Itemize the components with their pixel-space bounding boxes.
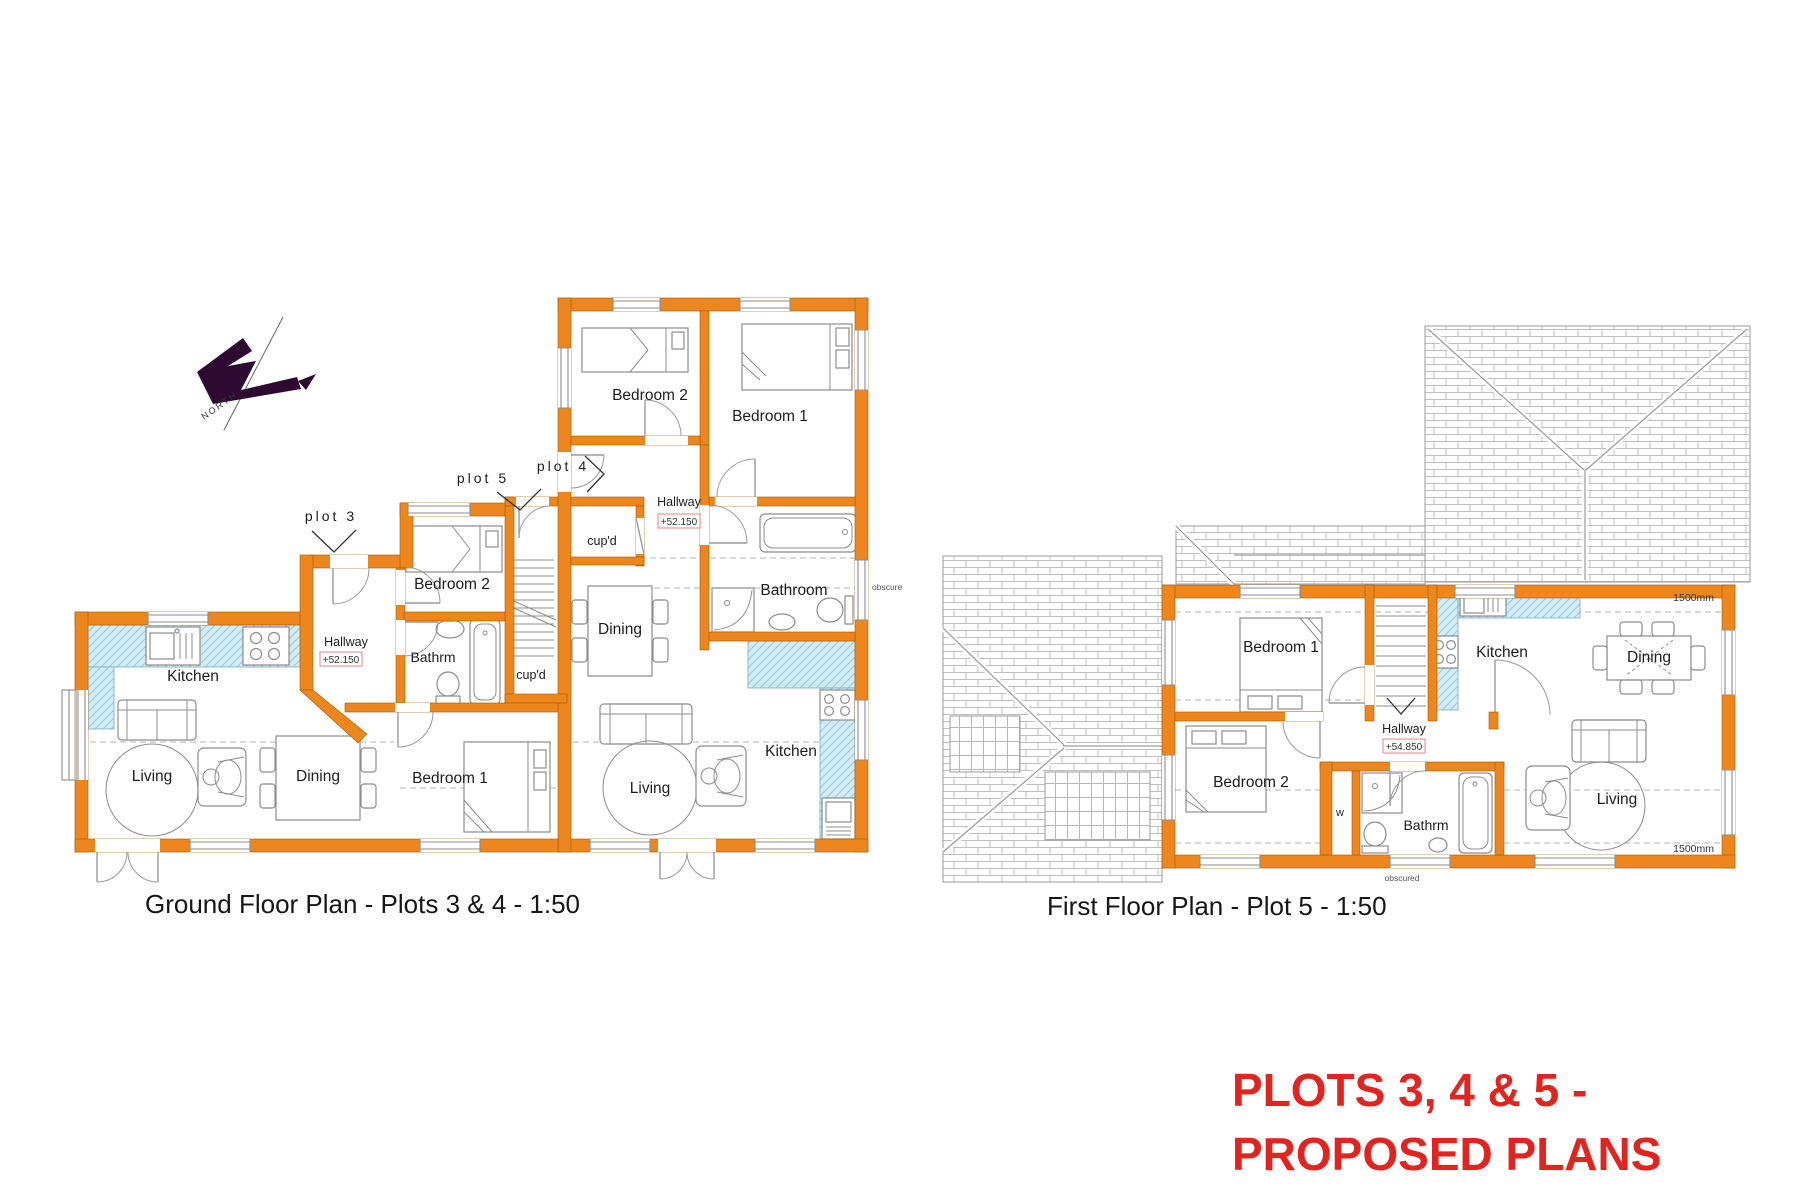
window <box>855 700 868 760</box>
door <box>700 505 747 545</box>
window <box>558 348 571 408</box>
bed-ff-bedroom2 <box>1186 726 1266 812</box>
north-arrow: NORTH <box>197 317 316 430</box>
window <box>1162 755 1175 820</box>
sheet-title-line1: PLOTS 3, 4 & 5 - <box>1232 1058 1661 1122</box>
room-label-bedroom1-plot3: Bedroom 1 <box>412 770 488 787</box>
room-label-cupboard-plot4: cup'd <box>587 534 617 548</box>
armchair-ff <box>1526 766 1570 830</box>
room-label-bathrm-ff: Bathrm <box>1403 817 1448 833</box>
room-label-living-plot4: Living <box>630 780 671 797</box>
room-label-bedroom1-plot4: Bedroom 1 <box>732 408 808 425</box>
window <box>190 839 250 852</box>
plot4-tag: plot 4 <box>537 458 589 474</box>
rug-plot3 <box>106 744 198 836</box>
window <box>1722 630 1735 695</box>
room-label-bedroom2-ff: Bedroom 2 <box>1213 774 1289 791</box>
room-label-dining-plot4: Dining <box>598 621 642 638</box>
window <box>1200 855 1260 868</box>
stairs-ff <box>1376 596 1426 714</box>
cupboard-door <box>636 518 644 554</box>
door <box>645 400 688 445</box>
window <box>420 839 480 852</box>
level-value-plot4: +52.150 <box>661 517 698 528</box>
window-note-obscured: obscured <box>1385 873 1420 883</box>
window-obscure <box>855 560 868 620</box>
room-label-bedroom1-ff: Bedroom 1 <box>1243 639 1319 656</box>
room-label-kitchen-ff: Kitchen <box>1476 644 1528 661</box>
first-floor-title: First Floor Plan - Plot 5 - 1:50 <box>1047 891 1387 922</box>
drawing-sheet: NORTH <box>0 0 1800 1200</box>
room-label-bathroom-plot4: Bathroom <box>760 582 827 599</box>
room-label-living-ff: Living <box>1597 791 1638 808</box>
window <box>613 298 660 311</box>
bed-plot3-bedroom1 <box>464 742 550 832</box>
plot5-tag: plot 5 <box>457 470 509 486</box>
room-label-living-plot3: Living <box>132 768 173 785</box>
room-label-wardrobe-ff: w <box>1335 807 1344 819</box>
ground-floor-title: Ground Floor Plan - Plots 3 & 4 - 1:50 <box>145 889 580 920</box>
door <box>715 459 757 506</box>
room-label-bedroom2-plot3: Bedroom 2 <box>414 576 490 593</box>
hob-plot4 <box>820 690 855 720</box>
north-arrow-glyph <box>197 338 301 404</box>
kitchen-opening-arc <box>1495 660 1550 715</box>
window-obscured <box>1390 855 1450 868</box>
sofa-plot3 <box>118 700 196 740</box>
window <box>1455 585 1515 598</box>
skylight <box>1045 772 1150 840</box>
window <box>755 839 815 852</box>
sofa-plot4 <box>600 704 692 744</box>
chamfer-wall <box>300 690 367 743</box>
room-label-dining-plot3: Dining <box>296 768 340 785</box>
hob-plot3 <box>243 627 289 665</box>
french-door <box>95 839 160 882</box>
window <box>1722 770 1735 835</box>
bathroom-fixtures-plot4 <box>712 514 856 632</box>
door <box>1329 665 1374 705</box>
french-door <box>658 839 716 879</box>
bay-window <box>62 690 88 780</box>
window <box>1535 855 1615 868</box>
window <box>740 298 790 311</box>
skylight <box>950 716 1020 772</box>
north-arrowhead-icon <box>298 374 316 390</box>
door <box>1283 712 1323 758</box>
bathroom-fixtures-ff <box>1362 773 1492 853</box>
window <box>855 330 868 390</box>
sheet-title-line2: PROPOSED PLANS <box>1232 1122 1661 1186</box>
dim-1500mm-bottom: 1500mm <box>1673 843 1714 855</box>
sink-unit-plot3 <box>146 627 200 665</box>
room-label-bedroom2-plot4: Bedroom 2 <box>612 387 688 404</box>
sofa-ff <box>1572 720 1646 762</box>
entrance-door-plot5 <box>516 497 551 538</box>
door <box>395 703 433 747</box>
sheet-title: PLOTS 3, 4 & 5 - PROPOSED PLANS <box>1232 1058 1661 1186</box>
bed-plot4-bedroom1 <box>742 324 852 390</box>
armchair-plot3 <box>198 748 246 806</box>
armchair-plot4 <box>696 746 746 806</box>
stairs-plot5 <box>507 560 556 656</box>
level-value-plot3: +52.150 <box>323 655 360 666</box>
level-value-ff: +54.850 <box>1386 742 1423 753</box>
room-label-hallway-plot4: Hallway <box>657 495 702 509</box>
plot3-arrow-icon <box>312 530 356 552</box>
room-label-cupboard-plot5: cup'd <box>516 668 546 682</box>
window <box>1240 585 1300 598</box>
room-label-hallway-ff: Hallway <box>1382 722 1427 736</box>
room-label-hallway-plot3: Hallway <box>324 635 369 649</box>
room-label-kitchen-plot4: Kitchen <box>765 743 817 760</box>
room-label-dining-ff: Dining <box>1627 649 1671 666</box>
bed-ff-bedroom1 <box>1240 618 1322 712</box>
window <box>408 503 470 516</box>
room-label-bathrm-plot3: Bathrm <box>410 649 455 665</box>
floor-plan-canvas: NORTH <box>0 0 1800 1200</box>
window <box>148 612 208 625</box>
plot3-tag: plot 3 <box>305 508 357 524</box>
sink-unit-plot4 <box>822 798 855 839</box>
dim-1500mm-top: 1500mm <box>1673 592 1714 604</box>
bed-plot4-bedroom2 <box>582 328 688 372</box>
room-label-kitchen-plot3: Kitchen <box>167 668 219 685</box>
counter-kitchen-plot4 <box>748 641 855 688</box>
entrance-door-plot3 <box>330 555 369 604</box>
bed-plot3-bedroom2 <box>406 526 502 572</box>
window <box>1162 620 1175 685</box>
window <box>590 839 650 852</box>
window-note-obscure: obscure <box>872 582 903 592</box>
